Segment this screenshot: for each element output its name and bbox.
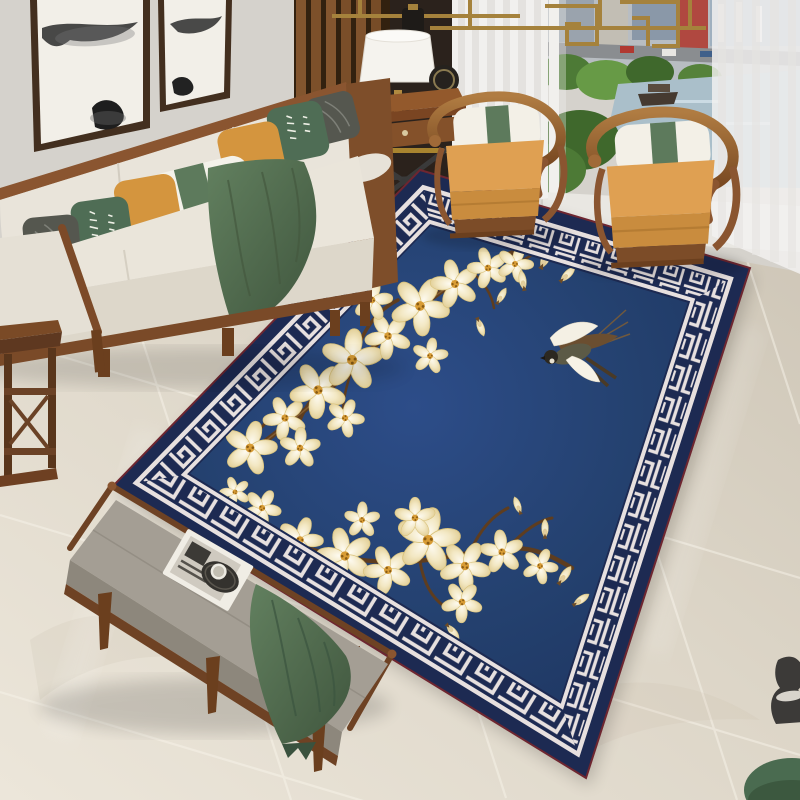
living-room-photo — [0, 0, 800, 800]
wall-art-left — [30, 0, 150, 152]
scene-canvas — [0, 0, 800, 800]
lamp-shade — [360, 36, 436, 82]
drawer-knob — [402, 130, 408, 136]
wall-art-right — [158, 0, 232, 112]
